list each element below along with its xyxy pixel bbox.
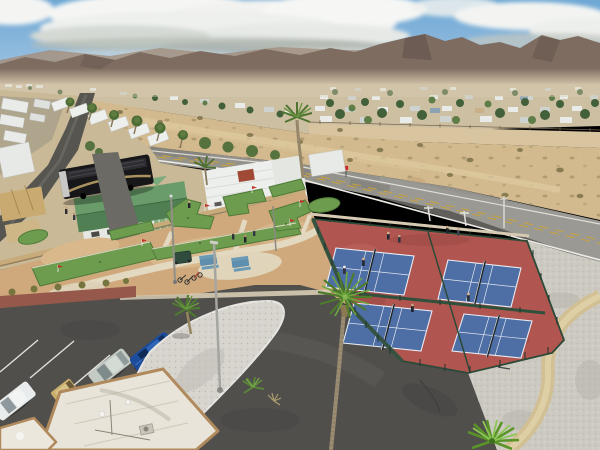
person xyxy=(73,213,75,220)
person xyxy=(188,201,190,208)
picnic-table xyxy=(231,256,251,272)
person xyxy=(253,229,255,236)
player xyxy=(446,226,449,234)
player xyxy=(411,304,414,312)
player xyxy=(343,266,346,274)
person xyxy=(232,232,234,240)
person xyxy=(65,207,67,214)
valley-haze xyxy=(0,68,600,86)
player xyxy=(398,235,401,243)
person xyxy=(244,235,246,243)
player xyxy=(467,293,470,301)
player xyxy=(387,232,390,240)
screenshot-root xyxy=(0,0,600,450)
player xyxy=(457,228,460,236)
player xyxy=(362,258,365,266)
putting-green xyxy=(307,196,341,215)
golf-cart xyxy=(173,251,191,265)
